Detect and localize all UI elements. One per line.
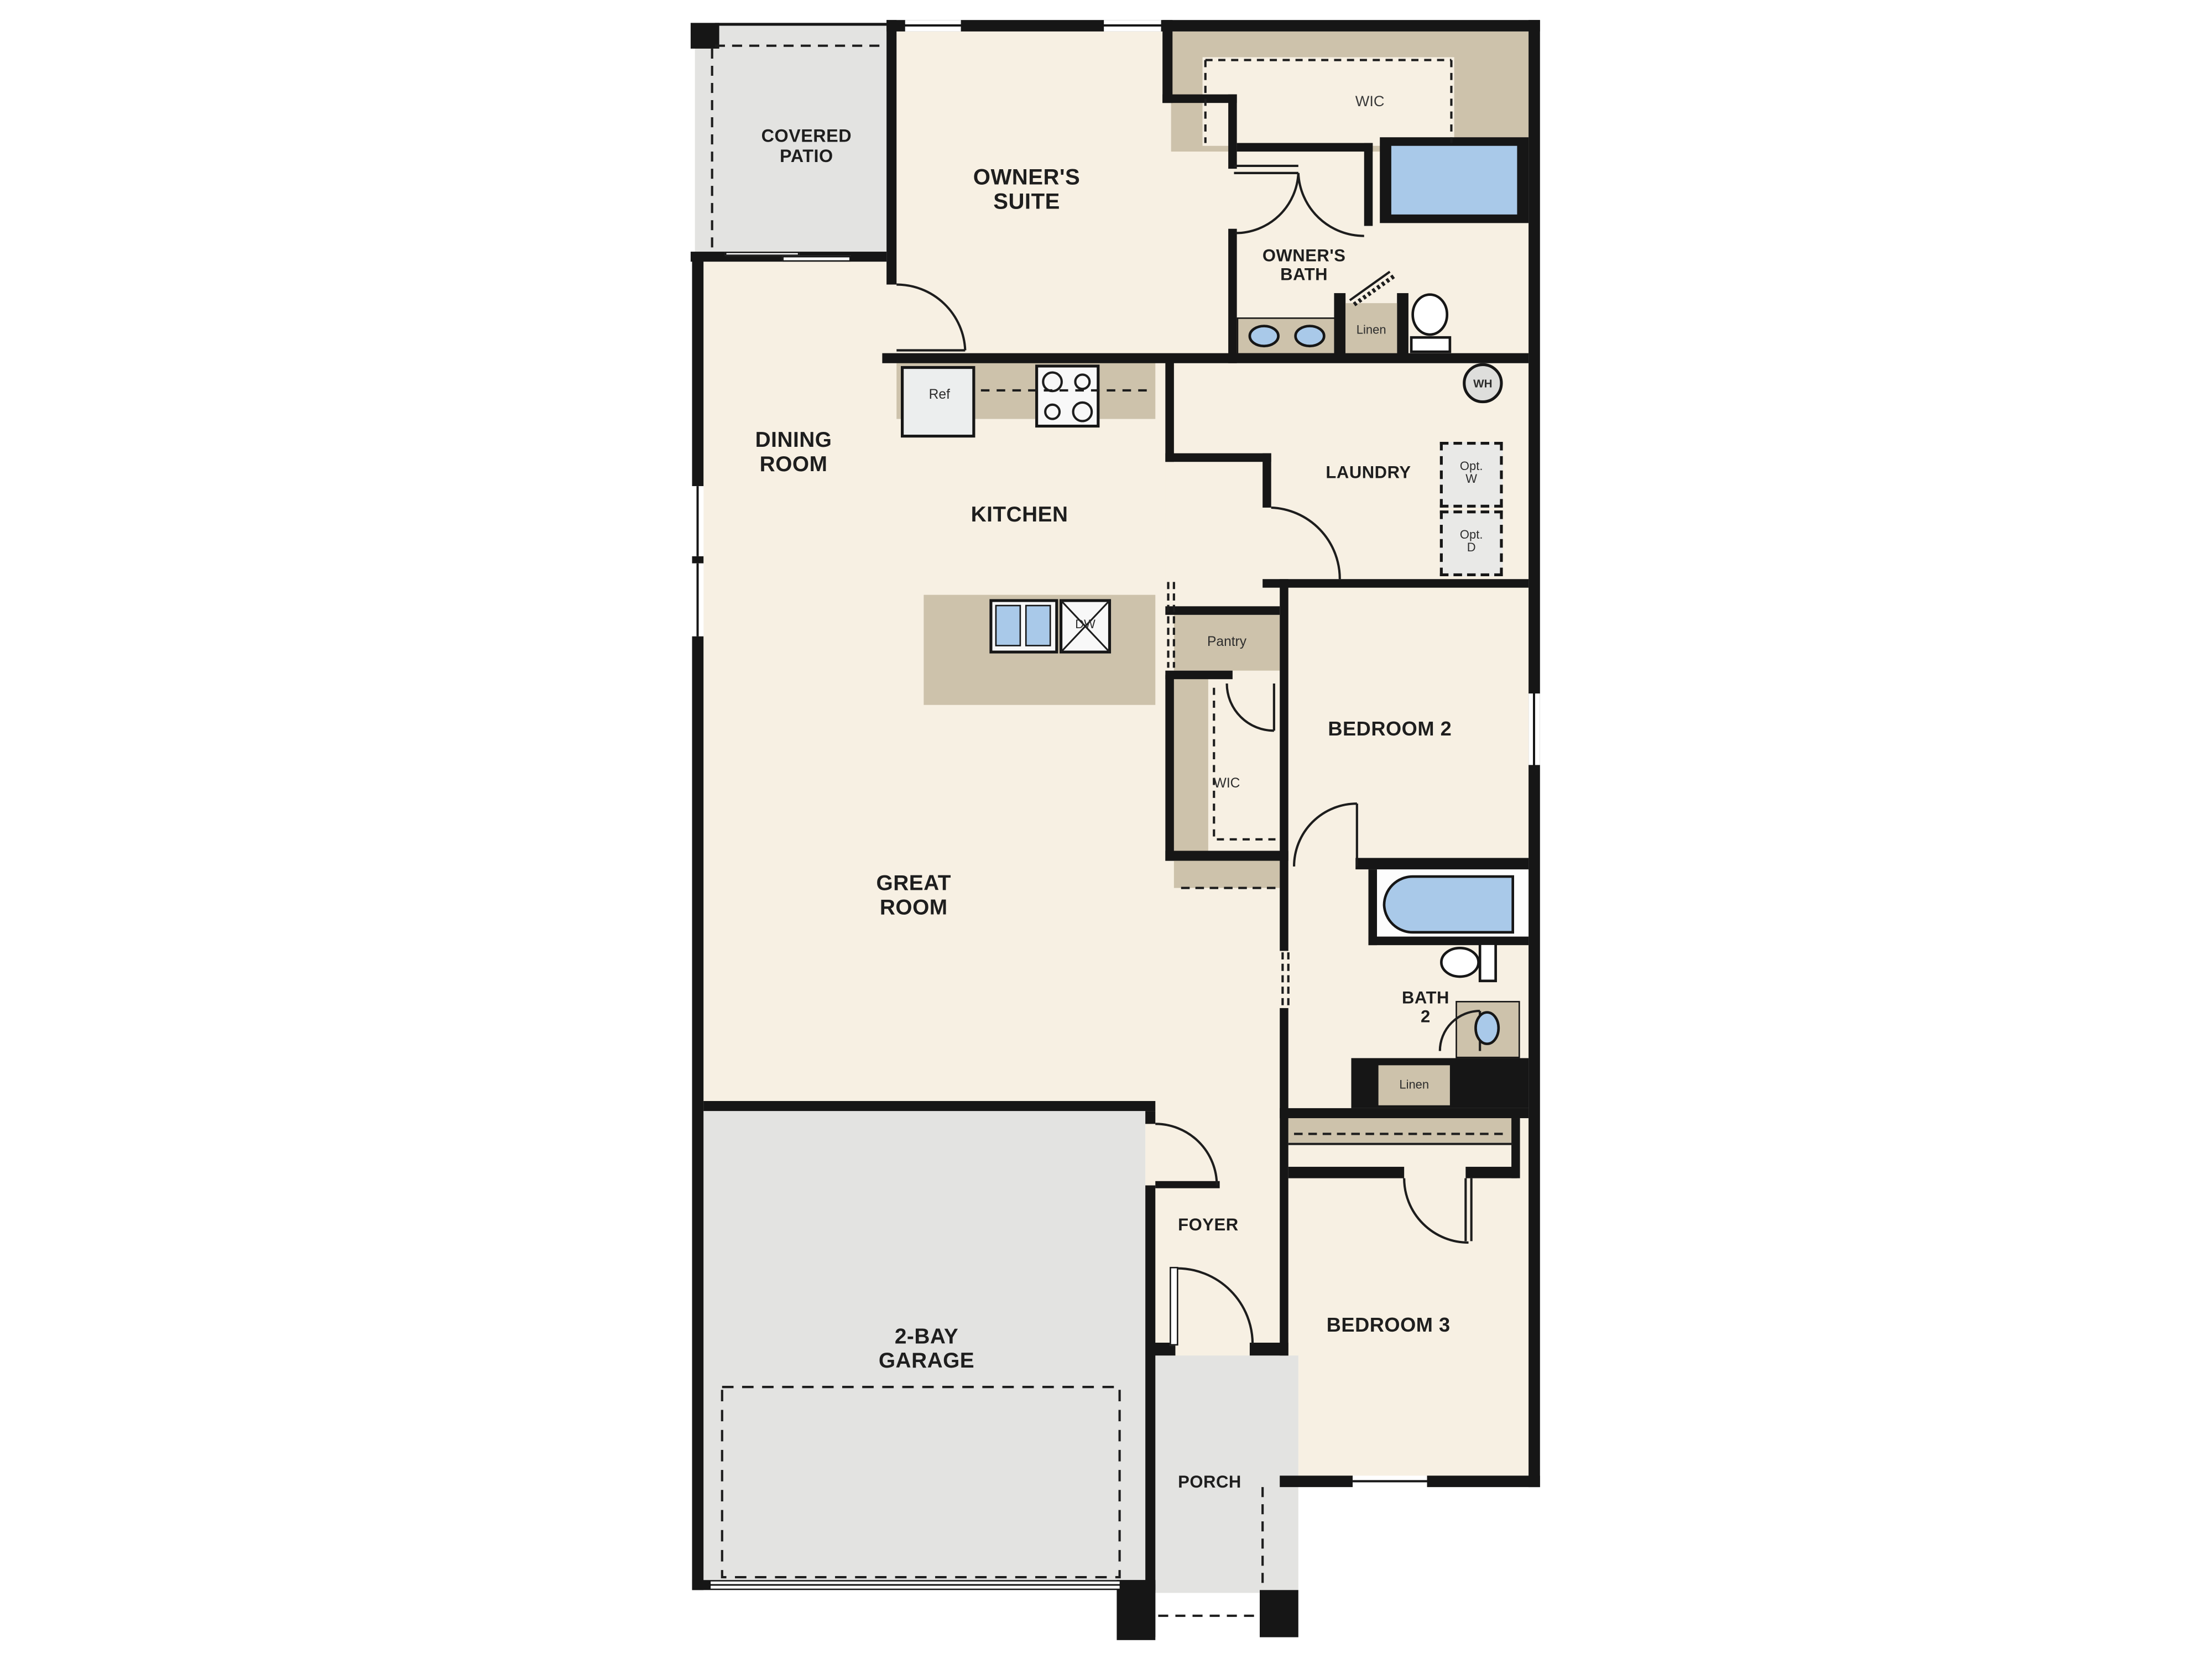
room-label-dining: DININGROOM [755,430,832,477]
label-bath2-linen: Linen [1399,1078,1429,1092]
door-linen-owner-hatch [1354,276,1394,305]
label-dw: DW [1075,618,1095,632]
room-label-garage: 2-BAYGARAGE [879,1326,974,1373]
door-arc-front [1177,1269,1253,1344]
door-arc-suite [896,285,965,351]
label-opt-w: Opt.W [1460,460,1483,487]
burner [1073,403,1092,421]
sink [1250,326,1279,346]
room-label-owner-wic: WIC [1355,95,1385,111]
label-pantry: Pantry [1207,636,1246,651]
hall-opening-dashes [1282,952,1288,1006]
toilet-tank [1480,944,1495,981]
room-label-bedroom3: BEDROOM 3 [1327,1314,1451,1337]
pantry-opening-dashes [1168,582,1174,667]
door-arc-bath-left [1235,173,1298,233]
room-label-porch: PORCH [1178,1473,1241,1492]
toilet-tank [1411,337,1450,352]
room-label-foyer: FOYER [1178,1216,1238,1235]
door-leaf [1234,166,1298,173]
room-label-owners-bath: OWNER'SBATH [1262,247,1346,285]
sink [1475,1013,1498,1044]
plan-linework [0,0,2212,1658]
room-label-covered-patio: COVEREDPATIO [761,128,852,167]
room-label-bath2: BATH2 [1402,989,1449,1027]
label-bed2-wic: WIC [1214,778,1240,792]
toilet-bowl [1413,295,1447,335]
door-arc-service [1155,1124,1217,1185]
sink [1296,326,1324,346]
porch-dashed-edge [1158,1487,1262,1616]
wic2-dashes [1214,688,1277,839]
label-owner-linen: Linen [1357,324,1386,337]
floor-plan: WH [0,0,2212,1658]
owner-wic-dashes [1206,60,1452,143]
label-ref: Ref [929,389,950,404]
room-label-bedroom2: BEDROOM 2 [1328,718,1452,740]
room-label-laundry: LAUNDRY [1326,464,1411,483]
room-label-great-room: GREATROOM [877,873,951,920]
burner [1045,405,1060,419]
door-arc-bed2 [1294,804,1357,867]
garage-dashed-rect [722,1387,1120,1577]
room-label-kitchen: KITCHEN [971,504,1068,528]
label-opt-d: Opt.D [1460,529,1483,555]
bathtub [1384,877,1513,932]
burner [1075,374,1089,389]
room-label-owners-suite: OWNER'SSUITE [973,166,1081,215]
door-arc-bath-right [1298,173,1364,236]
toilet-bowl [1441,948,1478,977]
door-arc-wic2 [1227,684,1274,731]
burner [1043,373,1062,392]
door-arc-bed3 [1404,1178,1472,1243]
door-linen-owner [1350,272,1390,300]
door-arc-laundry [1271,508,1340,579]
